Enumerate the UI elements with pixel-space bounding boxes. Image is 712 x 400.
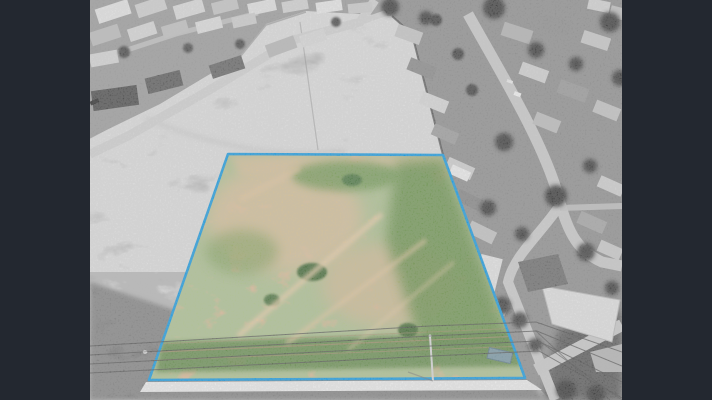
photo-foreground-details [90,0,622,400]
photo-grain [90,0,622,400]
letterbox-background [0,0,712,400]
aerial-photo-canvas [90,0,622,400]
aerial-photo [90,0,622,400]
